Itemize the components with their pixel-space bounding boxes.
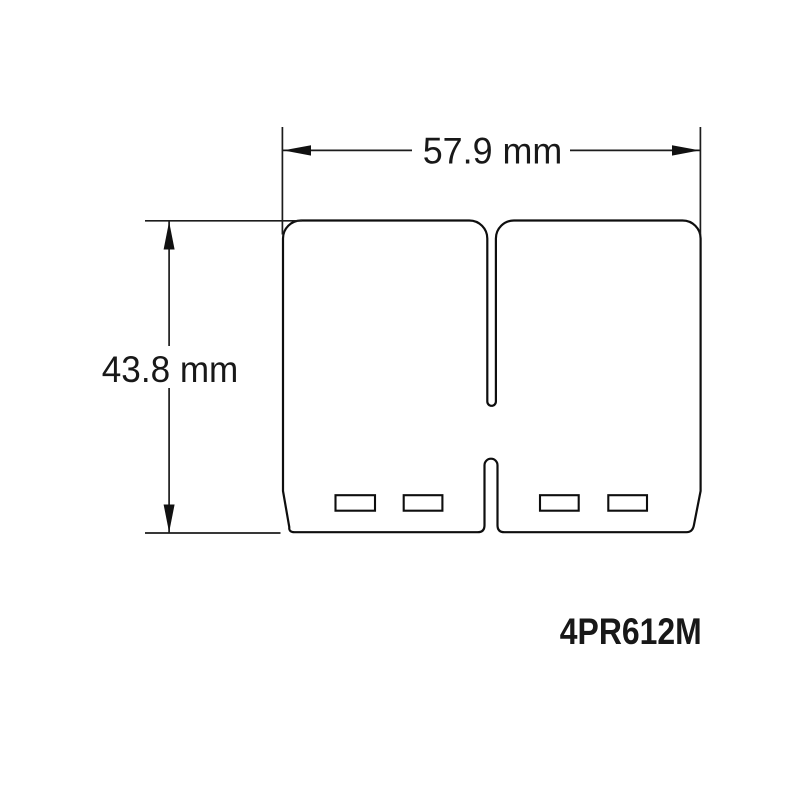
svg-text:4PR612M: 4PR612M [560,611,702,652]
svg-text:57.9 mm: 57.9 mm [423,131,563,172]
svg-text:43.8 mm: 43.8 mm [102,349,239,390]
